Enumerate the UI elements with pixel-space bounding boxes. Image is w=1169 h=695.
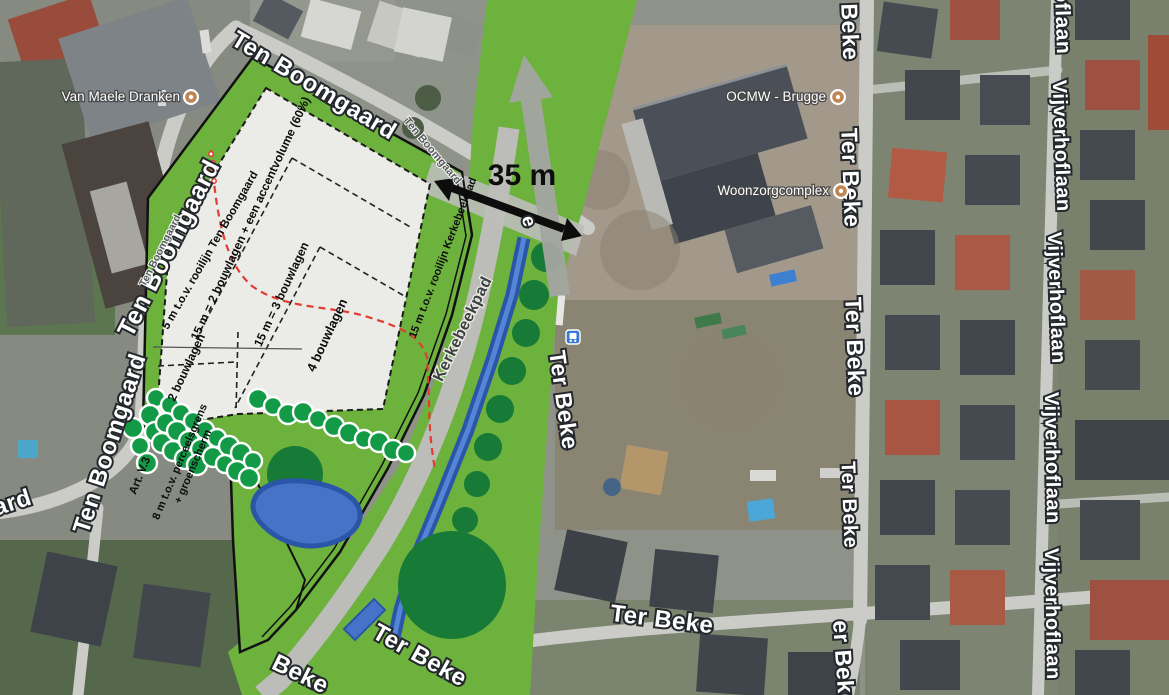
tree-icon bbox=[452, 507, 478, 533]
site-plan-map[interactable]: 35 m Ten Boomgaard Ten Boomgaard Ten Boo… bbox=[0, 0, 1169, 695]
street-label-vijverhoflaan-1: oflaan bbox=[1050, 0, 1075, 55]
bus-stop-icon[interactable] bbox=[566, 330, 580, 344]
tree-icon bbox=[398, 531, 506, 639]
tree-icon bbox=[397, 444, 415, 462]
street-label-vijverhoflaan-2: Vijverhoflaan bbox=[1048, 80, 1075, 212]
street-label-ter-beke-4: Ter Beke bbox=[836, 461, 861, 549]
street-label-ter-beke-3: Ter Beke bbox=[840, 297, 869, 397]
tree-icon bbox=[519, 280, 549, 310]
street-label-vijverhoflaan-4: Vijverhoflaan bbox=[1040, 392, 1064, 524]
tree-icon bbox=[239, 468, 259, 488]
tree-icon bbox=[498, 357, 526, 385]
street-label-ter-beke-5: er Beke bbox=[828, 619, 860, 695]
tree-icon bbox=[474, 433, 502, 461]
tree-icon bbox=[512, 319, 540, 347]
street-label-vijverhoflaan-5: Vijverhoflaan bbox=[1040, 548, 1064, 680]
poi-label[interactable]: Van Maele Dranken bbox=[62, 89, 180, 104]
tree-icon bbox=[464, 471, 490, 497]
street-label-ter-beke-1: r Beke bbox=[836, 0, 865, 61]
poi-icon[interactable] bbox=[830, 89, 846, 105]
poi-label[interactable]: Woonzorgcomplex bbox=[717, 183, 829, 198]
street-label-ter-beke-2: Ter Beke bbox=[836, 128, 865, 228]
poi-van-maele[interactable]: Van Maele Dranken bbox=[62, 89, 199, 105]
tree-icon bbox=[486, 395, 514, 423]
poi-icon[interactable] bbox=[183, 89, 199, 105]
poi-icon[interactable] bbox=[833, 183, 849, 199]
poi-label[interactable]: OCMW - Brugge bbox=[726, 89, 826, 104]
measurement-label: 35 m bbox=[488, 159, 556, 192]
street-label-vijverhoflaan-3: Vijverhoflaan bbox=[1043, 232, 1070, 364]
